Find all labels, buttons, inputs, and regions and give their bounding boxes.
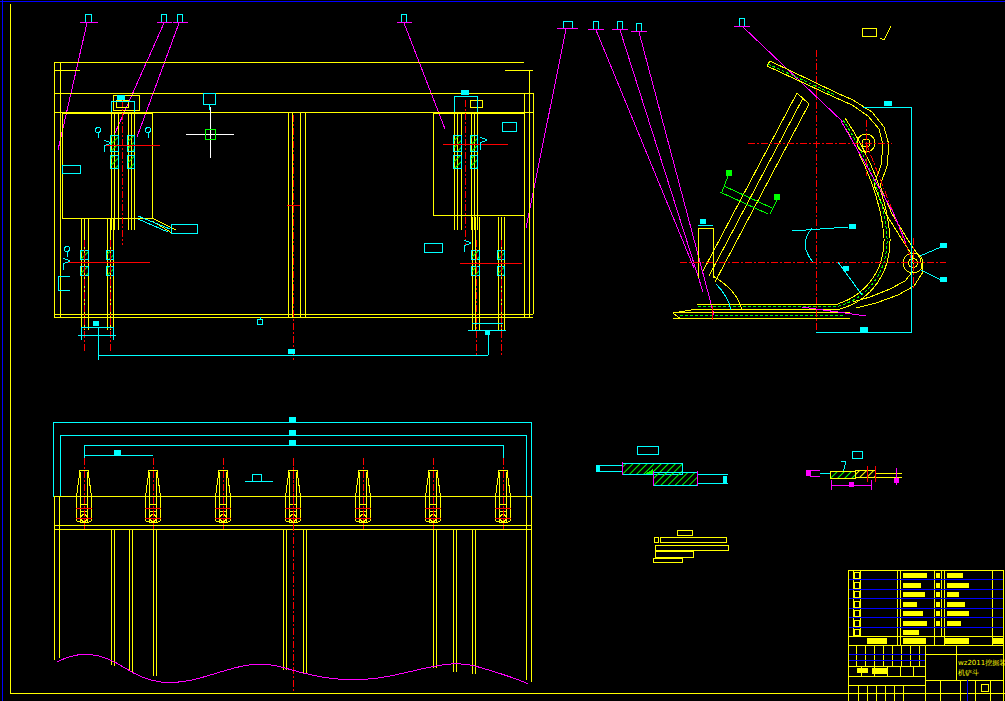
bucket-front-view[interactable] [54, 62, 534, 360]
section-detail-a[interactable] [596, 446, 728, 486]
lower-left-hinge [81, 218, 114, 330]
drawing-title-line2: 机铲斗 [958, 669, 979, 677]
break-line [57, 654, 528, 684]
part-balloons[interactable] [58, 14, 843, 315]
title-block: wz2011挖掘装载 机铲斗 [848, 570, 1005, 701]
drawing-title-line1: wz2011挖掘装载 [958, 659, 1005, 667]
crosshair-cursor [186, 107, 234, 158]
revision-grid [849, 646, 926, 701]
tooth [145, 458, 161, 530]
bom-table [849, 570, 1003, 646]
side-view-dimensions [698, 101, 947, 333]
leader-lines [58, 23, 843, 316]
weld-plate-stack[interactable] [653, 530, 728, 562]
bucket-side-view[interactable] [673, 50, 947, 333]
tooth [355, 458, 371, 530]
tooth [76, 458, 92, 530]
roughness-symbol [862, 26, 891, 40]
drawing-canvas[interactable]: wz2011挖掘装载 机铲斗 [0, 0, 1005, 701]
upper-left-hinge [62, 95, 153, 230]
section-detail-b[interactable] [806, 451, 902, 490]
lower-right-hinge [472, 217, 505, 330]
tooth [425, 458, 441, 530]
bucket-bottom-view[interactable] [53, 417, 532, 692]
front-view-dimensions [58, 90, 516, 360]
drawing-title-cell: wz2011挖掘装载 机铲斗 [926, 646, 1005, 701]
tooth [495, 458, 511, 530]
tooth [215, 458, 231, 530]
upper-right-hinge [433, 100, 525, 230]
bottom-view-dimensions [53, 417, 532, 497]
